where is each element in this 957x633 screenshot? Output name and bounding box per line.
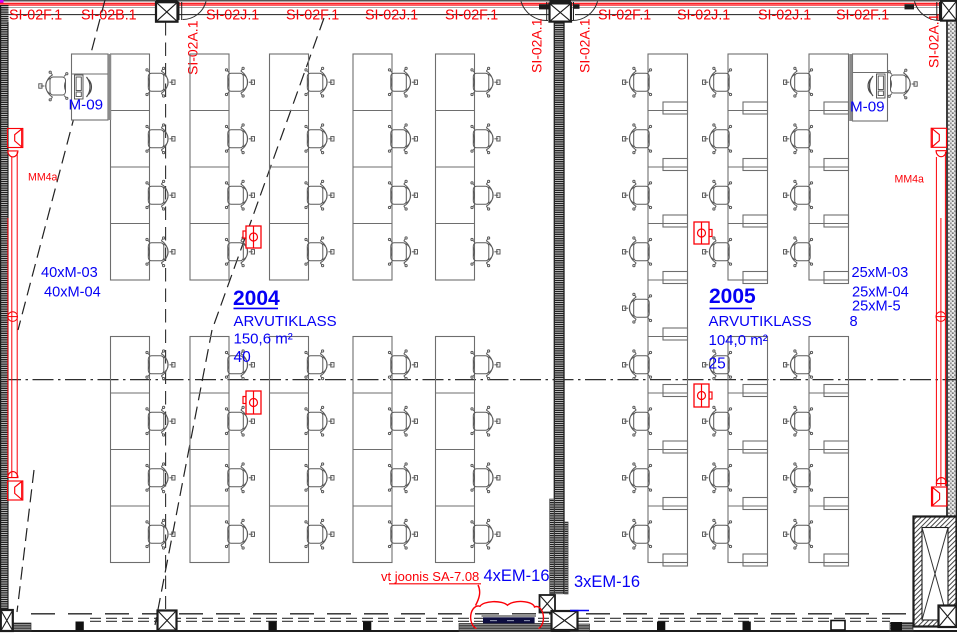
svg-text:4xEM-16: 4xEM-16 (484, 567, 550, 585)
svg-text:25: 25 (709, 356, 726, 373)
svg-text:SI-02B.1: SI-02B.1 (81, 8, 137, 24)
svg-text:SI-02F.1: SI-02F.1 (836, 8, 889, 24)
svg-text:2004: 2004 (233, 287, 280, 310)
svg-text:SI-02J.1: SI-02J.1 (206, 8, 259, 24)
svg-text:ARVUTIKLASS: ARVUTIKLASS (709, 313, 812, 330)
svg-text:MM4a: MM4a (28, 172, 58, 184)
svg-text:MM4a: MM4a (895, 174, 925, 186)
svg-text:25xM-03: 25xM-03 (852, 265, 909, 281)
svg-text:3xEM-16: 3xEM-16 (574, 573, 640, 591)
svg-text:SI-02A.1: SI-02A.1 (185, 20, 201, 75)
svg-text:SI-02F.1: SI-02F.1 (445, 8, 498, 24)
svg-text:SI-02A.1: SI-02A.1 (577, 18, 593, 73)
svg-text:150,6 m²: 150,6 m² (234, 331, 293, 348)
svg-text:M-09: M-09 (69, 97, 104, 114)
svg-text:104,0 m²: 104,0 m² (709, 332, 768, 349)
svg-text:SI-02A.1: SI-02A.1 (926, 13, 942, 68)
svg-text:SI-02J.1: SI-02J.1 (758, 8, 811, 24)
svg-text:8: 8 (850, 314, 858, 330)
svg-text:40: 40 (234, 349, 252, 366)
svg-text:25xM-5: 25xM-5 (852, 299, 901, 315)
svg-text:SI-02F.1: SI-02F.1 (286, 8, 339, 24)
svg-text:ARVUTIKLASS: ARVUTIKLASS (234, 313, 337, 330)
svg-text:SI-02J.1: SI-02J.1 (365, 8, 418, 24)
svg-text:vt joonis SA-7.08: vt joonis SA-7.08 (381, 569, 479, 584)
svg-text:SI-02J.1: SI-02J.1 (677, 8, 730, 24)
svg-text:40xM-03: 40xM-03 (41, 265, 98, 281)
svg-text:M-09: M-09 (850, 99, 885, 116)
svg-text:40xM-04: 40xM-04 (44, 285, 101, 301)
svg-text:SI-02F.1: SI-02F.1 (9, 8, 62, 24)
svg-text:SI-02F.1: SI-02F.1 (598, 8, 651, 24)
svg-text:2005: 2005 (709, 285, 756, 308)
svg-text:SI-02A.1: SI-02A.1 (529, 18, 545, 73)
